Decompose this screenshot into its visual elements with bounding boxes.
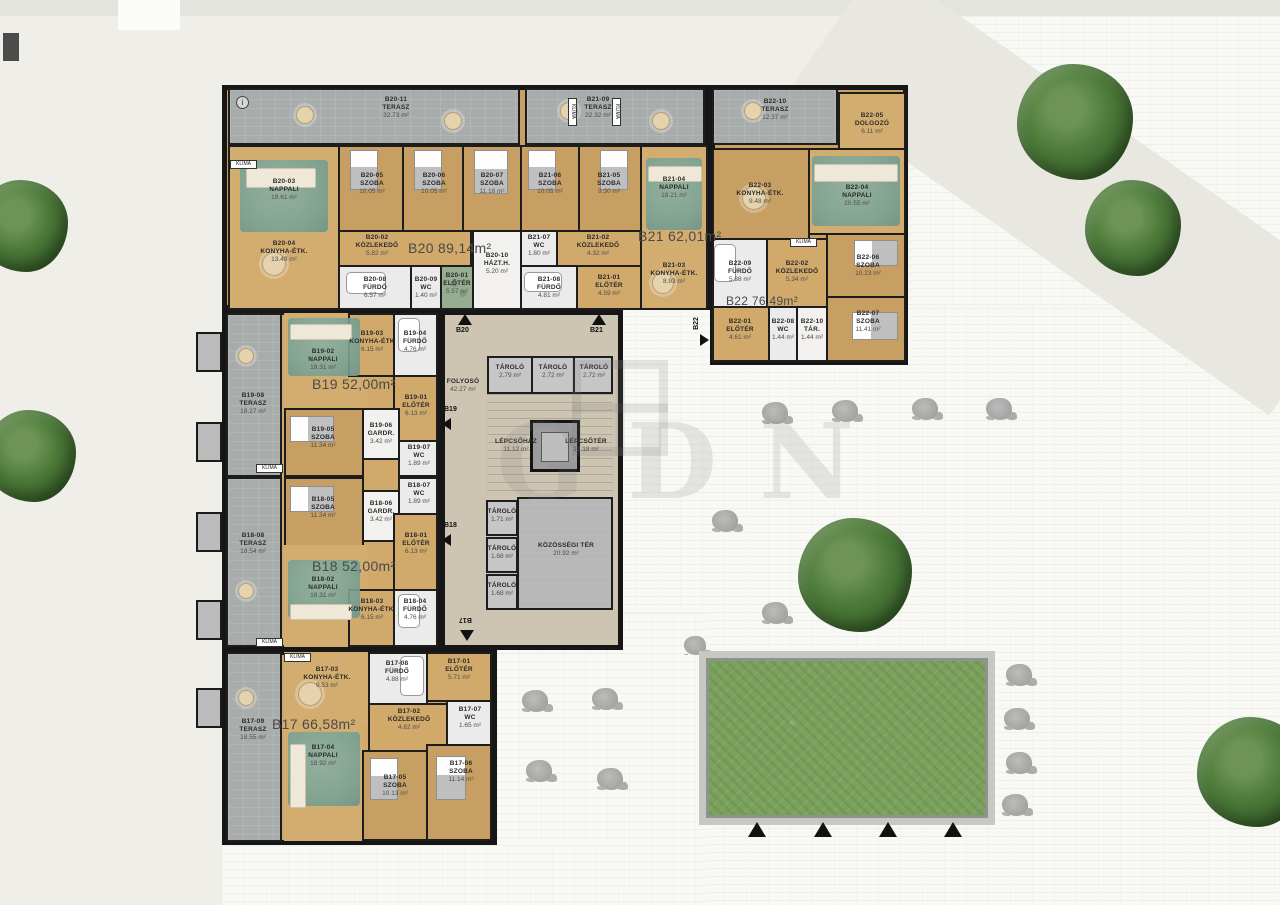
- klima-label: KLÍMA: [614, 104, 619, 119]
- lawn: [706, 658, 988, 818]
- room-b21-eloter: [576, 265, 642, 310]
- shrub-icon: [597, 768, 623, 790]
- sofa-icon: [290, 604, 352, 620]
- bathtub-icon: [400, 656, 424, 696]
- entrance-triangle-icon: [944, 822, 962, 837]
- sofa-icon: [246, 168, 316, 188]
- storage-room: [531, 356, 575, 394]
- klima-unit: KLÍMA: [230, 160, 257, 169]
- entrance-triangle-icon: [748, 822, 766, 837]
- terrace-table-icon: [652, 112, 670, 130]
- tree-icon: [0, 180, 68, 272]
- shrub-icon: [1006, 664, 1032, 686]
- tree-icon: [798, 518, 912, 632]
- room-b22-eloter: [712, 306, 770, 362]
- bed-icon: [600, 150, 628, 190]
- klima-label: KLÍMA: [236, 162, 251, 167]
- total-b20: B20 89,14m²: [408, 240, 491, 256]
- terrace-table-icon: [744, 102, 762, 120]
- shrub-icon: [684, 636, 706, 655]
- balcony-stub: [196, 332, 222, 372]
- terrace-table-icon: [238, 583, 254, 599]
- bed-icon: [528, 150, 556, 190]
- bed-icon: [290, 416, 334, 442]
- floor-plan: B20-11TERASZ32.73 m² B20-03NAPPALI19.61 …: [0, 0, 1280, 905]
- sofa-icon: [290, 744, 306, 808]
- dining-table-icon: [262, 252, 286, 276]
- bathtub-icon: [524, 272, 562, 292]
- total-b18: B18 52,00m²: [312, 558, 395, 574]
- shrub-icon: [526, 760, 552, 782]
- room-b22-terasz: [712, 88, 838, 145]
- bed-icon: [852, 312, 898, 340]
- tree-icon: [1017, 64, 1133, 180]
- room-b20-wc: [410, 265, 442, 310]
- shrub-icon: [986, 398, 1012, 420]
- dining-table-icon: [298, 682, 322, 706]
- room-b17-wc: [446, 700, 492, 746]
- klima-label: KLÍMA: [570, 104, 575, 119]
- bathtub-icon: [714, 244, 736, 282]
- shrub-icon: [1004, 708, 1030, 730]
- storage-room: [486, 574, 518, 610]
- bed-icon: [370, 758, 398, 800]
- bed-icon: [414, 150, 442, 190]
- sidewalk-strip: [0, 0, 1280, 16]
- bed-icon: [854, 240, 898, 266]
- room-b17-terasz: [226, 652, 282, 842]
- room-b21-wc: [520, 230, 558, 267]
- tree-icon: [0, 410, 76, 502]
- info-label: i: [242, 98, 244, 107]
- room-b19-gardrob: [362, 408, 400, 460]
- room-b22-tarolo: [796, 306, 828, 362]
- terrace-table-icon: [444, 112, 462, 130]
- balcony-stub: [196, 688, 222, 728]
- entrance-triangle-icon: [879, 822, 897, 837]
- dining-table-icon: [742, 186, 766, 210]
- total-b21: B21 62,01m²: [638, 228, 721, 244]
- marker-b20: B20: [456, 327, 469, 334]
- storage-room: [486, 537, 518, 573]
- entrance-arrow-icon: [700, 334, 709, 346]
- room-b19-terasz: [226, 313, 282, 477]
- entrance-arrow-icon: [460, 630, 474, 641]
- klima-unit: KLÍMA: [568, 98, 577, 126]
- plaza-paving-bottom: [222, 845, 622, 905]
- terrace-table-icon: [296, 106, 314, 124]
- marker-b21: B21: [590, 327, 603, 334]
- klima-label: KLÍMA: [262, 466, 277, 471]
- terrace-table-icon: [238, 348, 254, 364]
- shrub-icon: [912, 398, 938, 420]
- klima-unit: KLÍMA: [256, 638, 283, 647]
- entrance-arrow-icon: [442, 534, 451, 546]
- watermark-text: GDN: [496, 400, 896, 523]
- klima-unit: KLÍMA: [612, 98, 621, 126]
- klima-unit: KLÍMA: [790, 238, 817, 247]
- klima-label: KLÍMA: [796, 240, 811, 245]
- klima-unit: KLÍMA: [256, 464, 283, 473]
- bathtub-icon: [346, 272, 386, 294]
- balcony-stub: [196, 600, 222, 640]
- bed-icon: [350, 150, 378, 190]
- info-marker-icon: i: [236, 96, 249, 109]
- total-b17: B17 66,58m²: [272, 716, 355, 732]
- curb-block: [3, 33, 19, 61]
- marker-b17: B17: [459, 616, 472, 623]
- room-b17-eloter: [426, 652, 492, 702]
- room-b18-terasz: [226, 477, 282, 647]
- entrance-arrow-icon: [442, 418, 451, 430]
- room-b21-kozlekedo: [556, 230, 642, 267]
- entrance-arrow-icon: [458, 314, 472, 325]
- balcony-stub: [196, 512, 222, 552]
- total-b19: B19 52,00m²: [312, 376, 395, 392]
- bed-icon: [290, 486, 334, 512]
- room-b20-eloter: [440, 265, 474, 310]
- storage-room: [487, 356, 533, 394]
- bed-icon: [474, 150, 508, 194]
- tree-icon: [1085, 180, 1181, 276]
- sofa-icon: [814, 164, 898, 182]
- balcony-stub: [196, 422, 222, 462]
- marker-b19: B19: [444, 406, 457, 413]
- marker-b18: B18: [444, 522, 457, 529]
- shrub-icon: [762, 602, 788, 624]
- bed-icon: [436, 756, 466, 800]
- bathtub-icon: [398, 318, 420, 352]
- shrub-icon: [592, 688, 618, 710]
- klima-label: KLÍMA: [290, 655, 305, 660]
- room-b22-wc: [768, 306, 798, 362]
- room-b18-wc: [398, 477, 438, 515]
- shrub-icon: [1002, 794, 1028, 816]
- terrace-table-icon: [238, 690, 254, 706]
- sofa-icon: [648, 166, 702, 182]
- marker-b22: B22: [693, 317, 700, 330]
- sofa-icon: [290, 324, 352, 340]
- room-b19-wc: [398, 440, 438, 477]
- klima-unit: KLÍMA: [284, 653, 311, 662]
- klima-label: KLÍMA: [262, 640, 277, 645]
- shrub-icon: [1006, 752, 1032, 774]
- bathtub-icon: [398, 594, 420, 628]
- entrance-triangle-icon: [814, 822, 832, 837]
- room-b20-terasz: [228, 88, 520, 145]
- shrub-icon: [522, 690, 548, 712]
- dining-table-icon: [652, 272, 674, 294]
- total-b22: B22 76,49m²: [726, 294, 798, 308]
- entrance-arrow-icon: [592, 314, 606, 325]
- room-b18-eloter: [393, 513, 438, 591]
- path-gap: [118, 0, 180, 30]
